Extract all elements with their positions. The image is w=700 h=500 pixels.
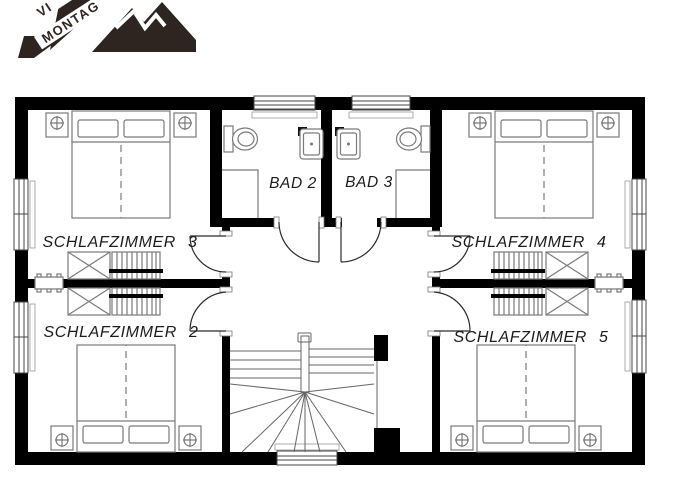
door-bad-3 — [341, 222, 381, 262]
double-bed-schlafzimmer-2 — [51, 345, 201, 452]
radiator-right — [595, 274, 623, 292]
mountain-icon — [92, 2, 196, 52]
window-sill — [30, 181, 35, 248]
window-right-sz5 — [632, 300, 646, 373]
window-left-sz2 — [14, 302, 28, 373]
brand-logo: MONTAG VI — [4, 0, 200, 58]
room-label-bad-2: BAD 2 — [269, 175, 317, 192]
window-sill — [625, 181, 630, 248]
door-bad-2 — [279, 222, 319, 262]
wardrobe-crossed — [546, 288, 588, 315]
window-top-bad3 — [352, 96, 410, 110]
wardrobe-hatched — [112, 252, 160, 279]
door-schlafzimmer-5 — [434, 292, 470, 331]
double-bed-schlafzimmer-5 — [451, 345, 601, 452]
wardrobe-hatched — [112, 288, 160, 315]
double-bed-schlafzimmer-3 — [46, 111, 196, 218]
shower-bad-3 — [396, 170, 430, 218]
floor-plan-page: SCHLAFZIMMER 3 SCHLAFZIMMER 4 SCHLAFZIMM… — [0, 0, 700, 500]
window-sill — [30, 304, 35, 371]
window-sill — [275, 444, 339, 450]
sink-bad-2 — [298, 127, 323, 159]
window-sill — [252, 112, 317, 118]
wardrobe-crossed — [68, 288, 110, 315]
staircase — [230, 333, 377, 452]
wardrobe-hatched — [494, 288, 542, 315]
wardrobe-crossed — [68, 252, 110, 279]
window-sill — [349, 112, 413, 118]
window-top-bad2 — [254, 96, 315, 110]
toilet-bad-2 — [224, 126, 258, 152]
room-label-bad-3: BAD 3 — [345, 174, 393, 191]
double-bed-schlafzimmer-4 — [469, 111, 619, 218]
toilet-bad-3 — [397, 126, 431, 152]
floor-plan: SCHLAFZIMMER 3 SCHLAFZIMMER 4 SCHLAFZIMM… — [0, 0, 700, 500]
window-right-sz4 — [632, 179, 646, 250]
shower-bad-2 — [222, 170, 258, 218]
room-label-schlafzimmer-4: SCHLAFZIMMER 4 — [452, 234, 607, 251]
room-label-schlafzimmer-3: SCHLAFZIMMER 3 — [43, 234, 198, 251]
sink-bad-3 — [335, 127, 360, 159]
radiator-left — [35, 274, 63, 292]
door-jambs — [220, 217, 440, 336]
window-bottom-stair — [277, 451, 337, 465]
wardrobe-crossed — [546, 252, 588, 279]
window-left-sz3 — [14, 179, 28, 250]
stair-handrail — [301, 336, 309, 392]
room-label-schlafzimmer-2: SCHLAFZIMMER 2 — [44, 324, 199, 341]
wardrobe-hatched — [494, 252, 542, 279]
room-label-schlafzimmer-5: SCHLAFZIMMER 5 — [454, 329, 609, 346]
window-sill — [625, 302, 630, 371]
